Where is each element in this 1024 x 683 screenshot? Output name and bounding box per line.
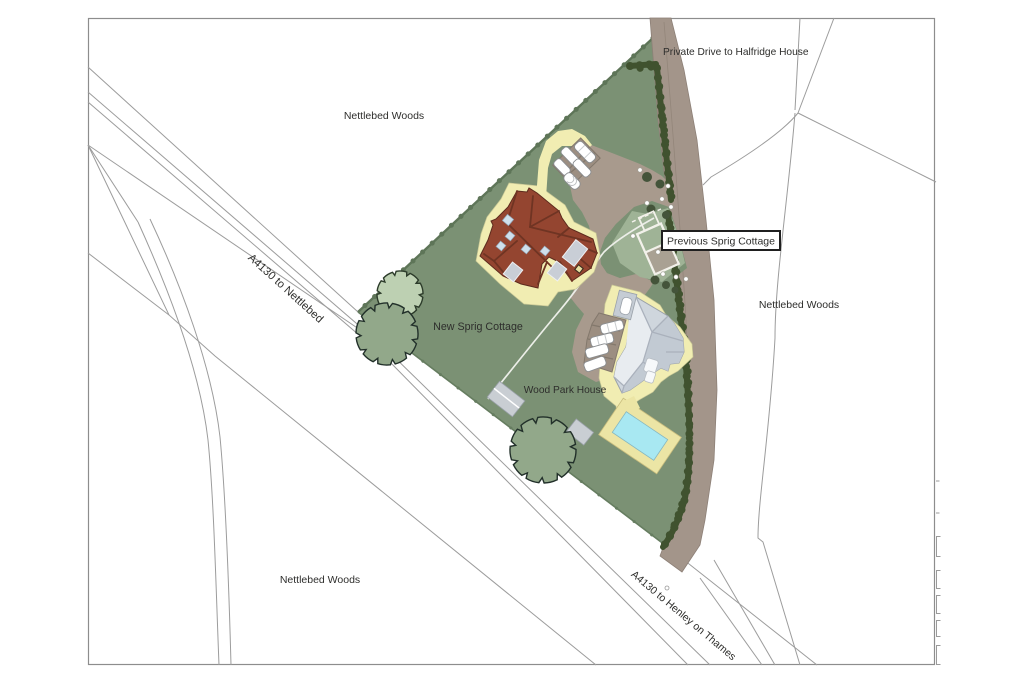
svg-text:Wood Park House: Wood Park House	[524, 385, 607, 396]
svg-text:New Sprig Cottage: New Sprig Cottage	[433, 321, 523, 333]
svg-text:Previous Sprig Cottage: Previous Sprig Cottage	[667, 236, 775, 248]
svg-text:Nettlebed Woods: Nettlebed Woods	[280, 574, 360, 586]
svg-text:Nettlebed Woods: Nettlebed Woods	[759, 299, 839, 311]
svg-text:Nettlebed Woods: Nettlebed Woods	[344, 110, 424, 122]
svg-text:Private Drive to Halfridge Hou: Private Drive to Halfridge House	[663, 47, 809, 58]
